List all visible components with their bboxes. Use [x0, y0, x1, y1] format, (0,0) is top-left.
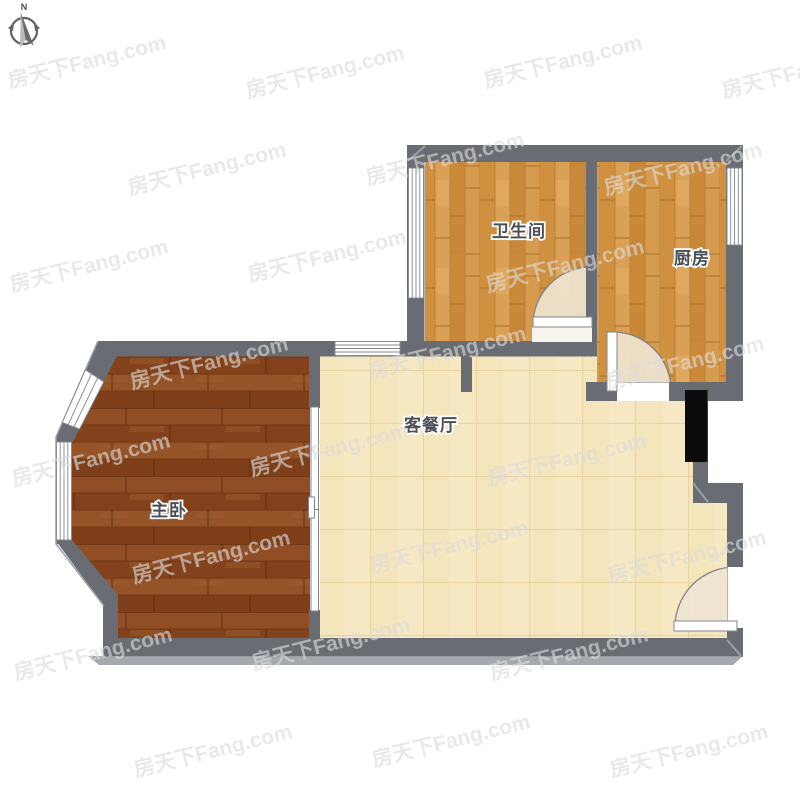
shaft-block: [685, 390, 708, 462]
watermark-text: 房天下Fang.com: [607, 719, 770, 782]
room-label-living-dining: 客餐厅: [403, 415, 458, 435]
entry-door-opening: [728, 567, 744, 628]
watermark-text: 房天下Fang.com: [369, 709, 532, 772]
bathroom-window: [409, 168, 424, 298]
kitchen-door-opening: [617, 383, 669, 402]
watermark-text: 房天下Fang.com: [125, 137, 288, 200]
floor-plan-page: 卫生间 厨房 客餐厅 主卧 N 房天下Fang.com房天下Fang.com房天…: [0, 0, 800, 800]
compass-arrow-left: [8, 23, 14, 31]
kitchen-window: [727, 168, 742, 245]
compass-north-icon: N: [8, 2, 40, 48]
wall-bedroom-divider-upper: [309, 341, 320, 408]
room-label-bathroom: 卫生间: [492, 221, 546, 241]
watermark-text: 房天下Fang.com: [7, 234, 170, 297]
bevel-bottom-strip: [88, 656, 743, 665]
watermark-text: 房天下Fang.com: [719, 40, 800, 103]
wall-stub: [461, 341, 472, 392]
room-label-kitchen: 厨房: [674, 248, 710, 268]
compass-arrow-right: [34, 23, 40, 31]
kitchen-door-leaf: [607, 332, 617, 391]
bathroom-door-leaf: [533, 317, 592, 327]
watermark-text: 房天下Fang.com: [481, 30, 644, 93]
watermark-text: 房天下Fang.com: [245, 224, 408, 287]
entry-door-leaf: [674, 621, 737, 631]
bathroom-door-opening: [532, 327, 592, 342]
wall-bottom: [103, 638, 743, 657]
compass-north-label: N: [21, 2, 28, 12]
room-label-master-bedroom: 主卧: [151, 500, 187, 520]
floor-plan-svg: 卫生间 厨房 客餐厅 主卧 N 房天下Fang.com房天下Fang.com房天…: [0, 0, 800, 800]
bay-window-side: [57, 442, 72, 540]
living-room-window: [335, 342, 400, 356]
wall-top: [407, 145, 743, 162]
watermark-text: 房天下Fang.com: [243, 40, 406, 103]
watermark-text: 房天下Fang.com: [131, 719, 294, 782]
